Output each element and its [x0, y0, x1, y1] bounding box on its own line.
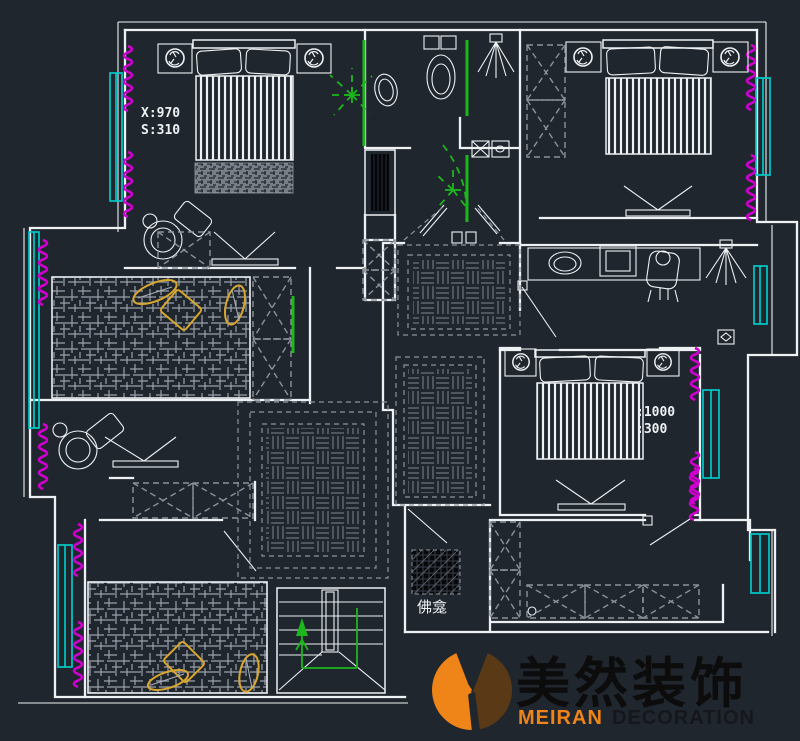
dimension-note-line2: :300	[636, 422, 667, 437]
bed-icon	[52, 277, 250, 398]
shrine-label: 佛龛	[417, 598, 447, 616]
bedroom-bottom-left	[88, 582, 267, 694]
logo-en-bold: MEIRAN	[518, 707, 603, 729]
dimension-note-line2: S:310	[141, 123, 180, 138]
logo-cn-text: 美然装饰	[516, 652, 748, 715]
floorplan-drawing: X:970 S:310	[0, 0, 800, 741]
logo-en-rest: DECORATION	[612, 707, 755, 729]
floorplan-canvas: X:970 S:310	[0, 0, 800, 741]
dimension-note-line1: X:970	[141, 106, 180, 121]
logo: 美然装饰 MEIRAN DECORATION	[432, 647, 755, 732]
bed-bench	[195, 163, 293, 193]
dimension-note-line1: :1000	[636, 405, 675, 420]
